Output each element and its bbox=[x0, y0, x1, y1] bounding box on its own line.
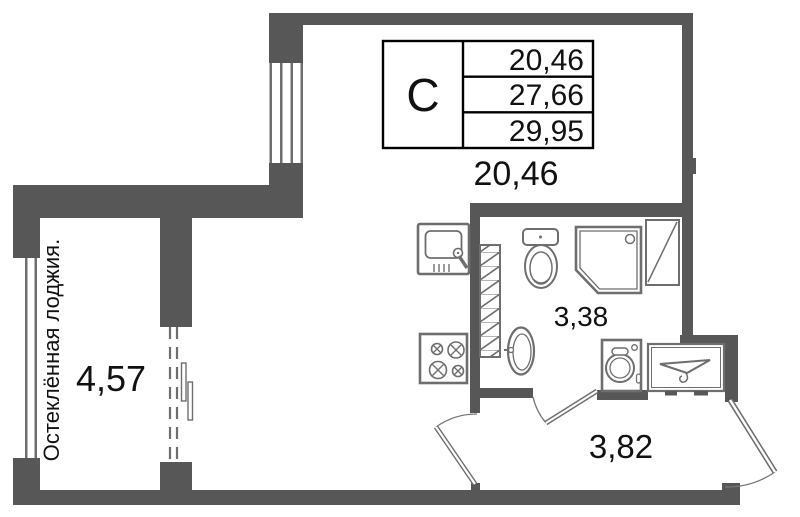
wall-bath-top bbox=[470, 203, 693, 217]
balcony-door-dashed bbox=[170, 327, 177, 462]
window-loggia-glazing bbox=[25, 258, 37, 458]
entry-door-swing bbox=[725, 400, 775, 487]
washing-machine-icon bbox=[602, 340, 641, 391]
loggia-area-label: 4,57 bbox=[76, 358, 146, 399]
legend-row-living: 20,46 bbox=[509, 44, 584, 77]
kitchen-sink-icon bbox=[418, 224, 469, 274]
window-main-room bbox=[270, 63, 304, 163]
balcony-door-panels bbox=[182, 363, 193, 420]
toilet-icon bbox=[523, 229, 558, 288]
hall-area-label: 3,82 bbox=[589, 428, 653, 465]
wall-east-lower bbox=[725, 347, 738, 402]
wall-loggia-partition-upper bbox=[160, 185, 192, 327]
loggia-caption: Остеклённая лоджия. bbox=[39, 239, 64, 461]
wall-top bbox=[269, 13, 693, 25]
wall-west-upper bbox=[13, 185, 40, 258]
wall-east bbox=[682, 13, 693, 347]
legend-row-total-loggia: 29,95 bbox=[509, 115, 584, 148]
wall-bath-left bbox=[470, 203, 480, 413]
bathroom-door-swing bbox=[533, 391, 597, 423]
living-area-label: 20,46 bbox=[473, 155, 558, 193]
wall-door-hinge-stub bbox=[471, 483, 480, 495]
wall-bath-bottom-left bbox=[478, 388, 533, 398]
wall-window-pier-upper bbox=[269, 13, 303, 63]
wall-bottom bbox=[13, 490, 740, 505]
shower-screen-icon bbox=[646, 220, 679, 285]
wardrobe bbox=[648, 344, 724, 396]
wall-horizontal-left bbox=[13, 185, 303, 218]
floor-plan-canvas: С 20,46 27,66 29,95 20,46 4,57 3,38 3,82… bbox=[0, 0, 800, 517]
shower-cabin-icon bbox=[576, 227, 641, 293]
wall-east-joint bbox=[693, 158, 696, 174]
vent-shaft-hatch bbox=[480, 245, 500, 357]
bathroom-area-label: 3,38 bbox=[554, 301, 609, 332]
apartment-type: С bbox=[406, 69, 439, 121]
floor-plan: С 20,46 27,66 29,95 20,46 4,57 3,38 3,82… bbox=[0, 0, 800, 517]
interior-door-swing bbox=[436, 414, 477, 484]
legend-row-total: 27,66 bbox=[509, 79, 584, 112]
stove-icon bbox=[420, 334, 467, 383]
washbasin-icon bbox=[504, 328, 534, 375]
